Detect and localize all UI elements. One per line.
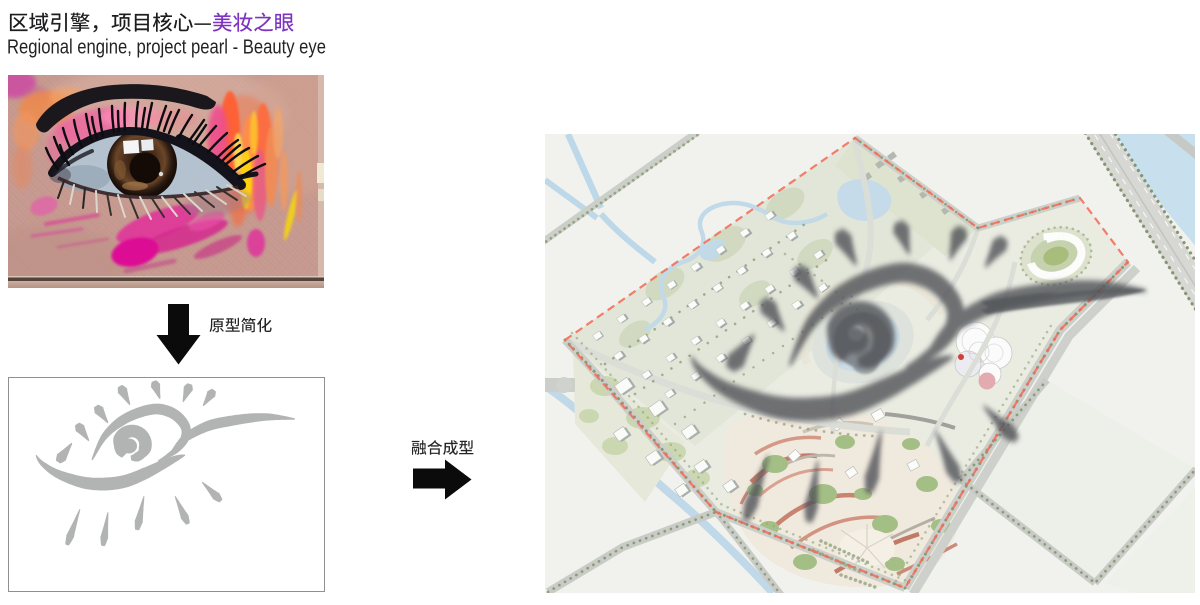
svg-text:Regional engine, project pearl: Regional engine, project pearl - Beauty … — [7, 36, 326, 59]
